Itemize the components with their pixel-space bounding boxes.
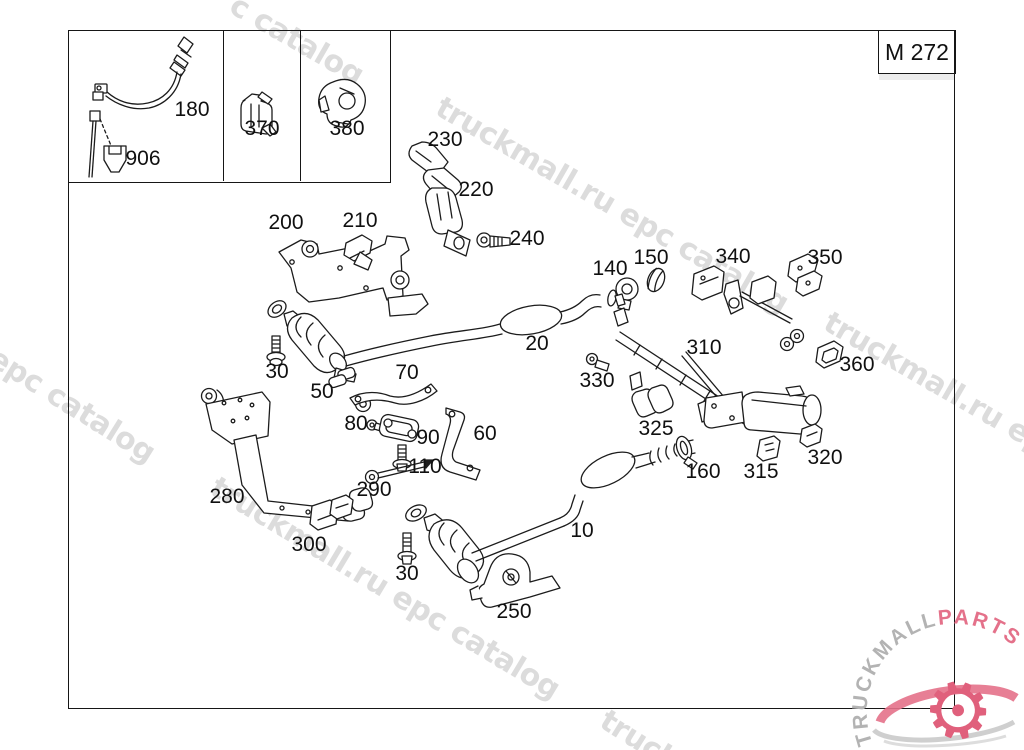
logo-parts-text: PARTS — [937, 605, 1024, 651]
vendor-logo: ⚙ TRUCKMALLPARTS — [0, 0, 1024, 750]
gear-icon: ⚙ — [913, 659, 1004, 750]
catalog-page: c catalogtruckmall.ru epc catalogtruckma… — [0, 0, 1024, 750]
